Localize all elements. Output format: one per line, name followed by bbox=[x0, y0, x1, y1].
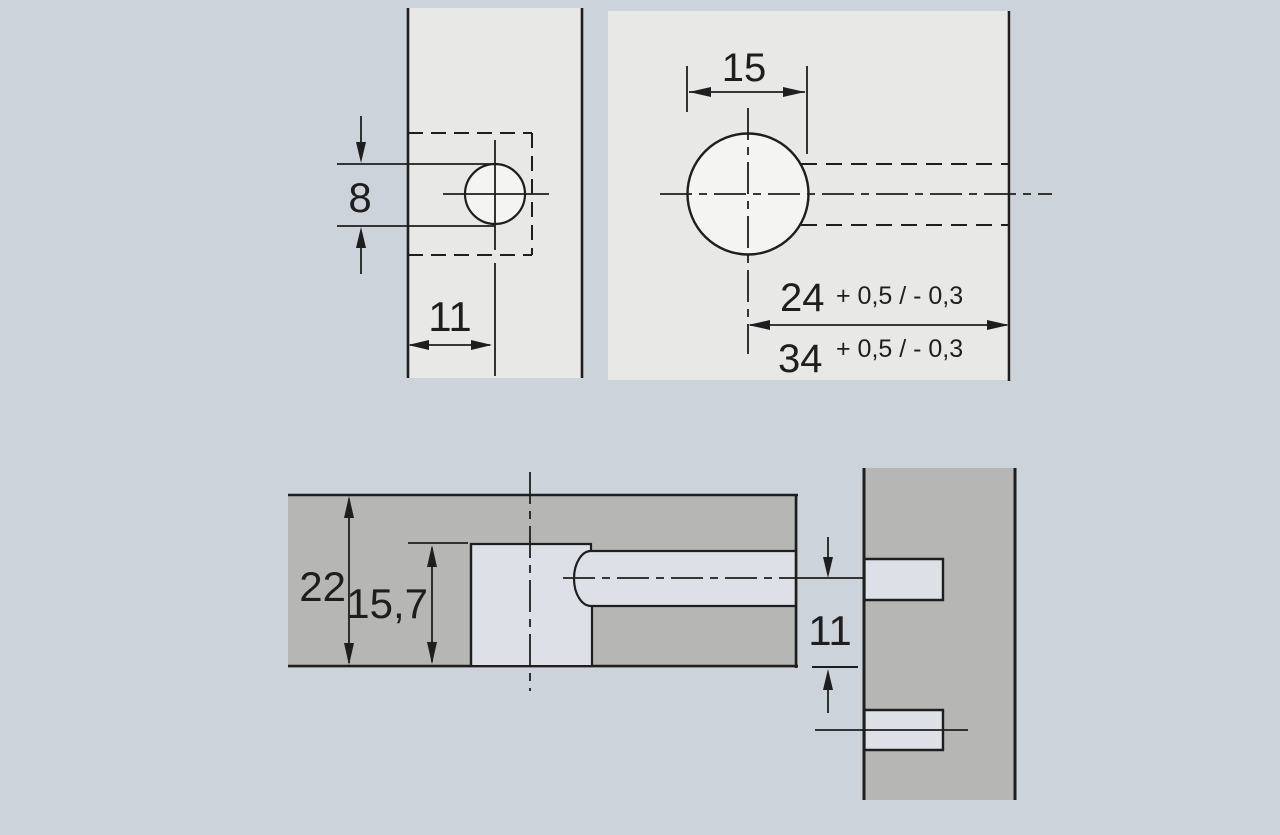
dimension-11-label: 11 bbox=[428, 293, 472, 340]
drawing-canvas: 8 11 15 24 + 0,5 / - 0,3 bbox=[0, 0, 1280, 835]
dimension-34-tolerance: + 0,5 / - 0,3 bbox=[836, 335, 963, 363]
technical-drawing: 8 11 15 24 + 0,5 / - 0,3 bbox=[0, 0, 1280, 835]
dimension-8-label: 8 bbox=[348, 174, 371, 221]
dimension-11b-label: 11 bbox=[808, 607, 852, 654]
dimension-15-label: 15 bbox=[722, 46, 767, 90]
upper-dowel-hole bbox=[866, 560, 942, 599]
face-view: 15 24 + 0,5 / - 0,3 34 + 0,5 / - 0,3 bbox=[608, 11, 1052, 381]
dimension-157-label: 15,7 bbox=[346, 580, 428, 627]
dimension-24-tolerance: + 0,5 / - 0,3 bbox=[836, 282, 963, 310]
dimension-34-label: 34 bbox=[778, 337, 823, 381]
dimension-24-label: 24 bbox=[780, 276, 825, 320]
dimension-22-label: 22 bbox=[299, 563, 346, 610]
fitting-recess bbox=[471, 544, 592, 665]
